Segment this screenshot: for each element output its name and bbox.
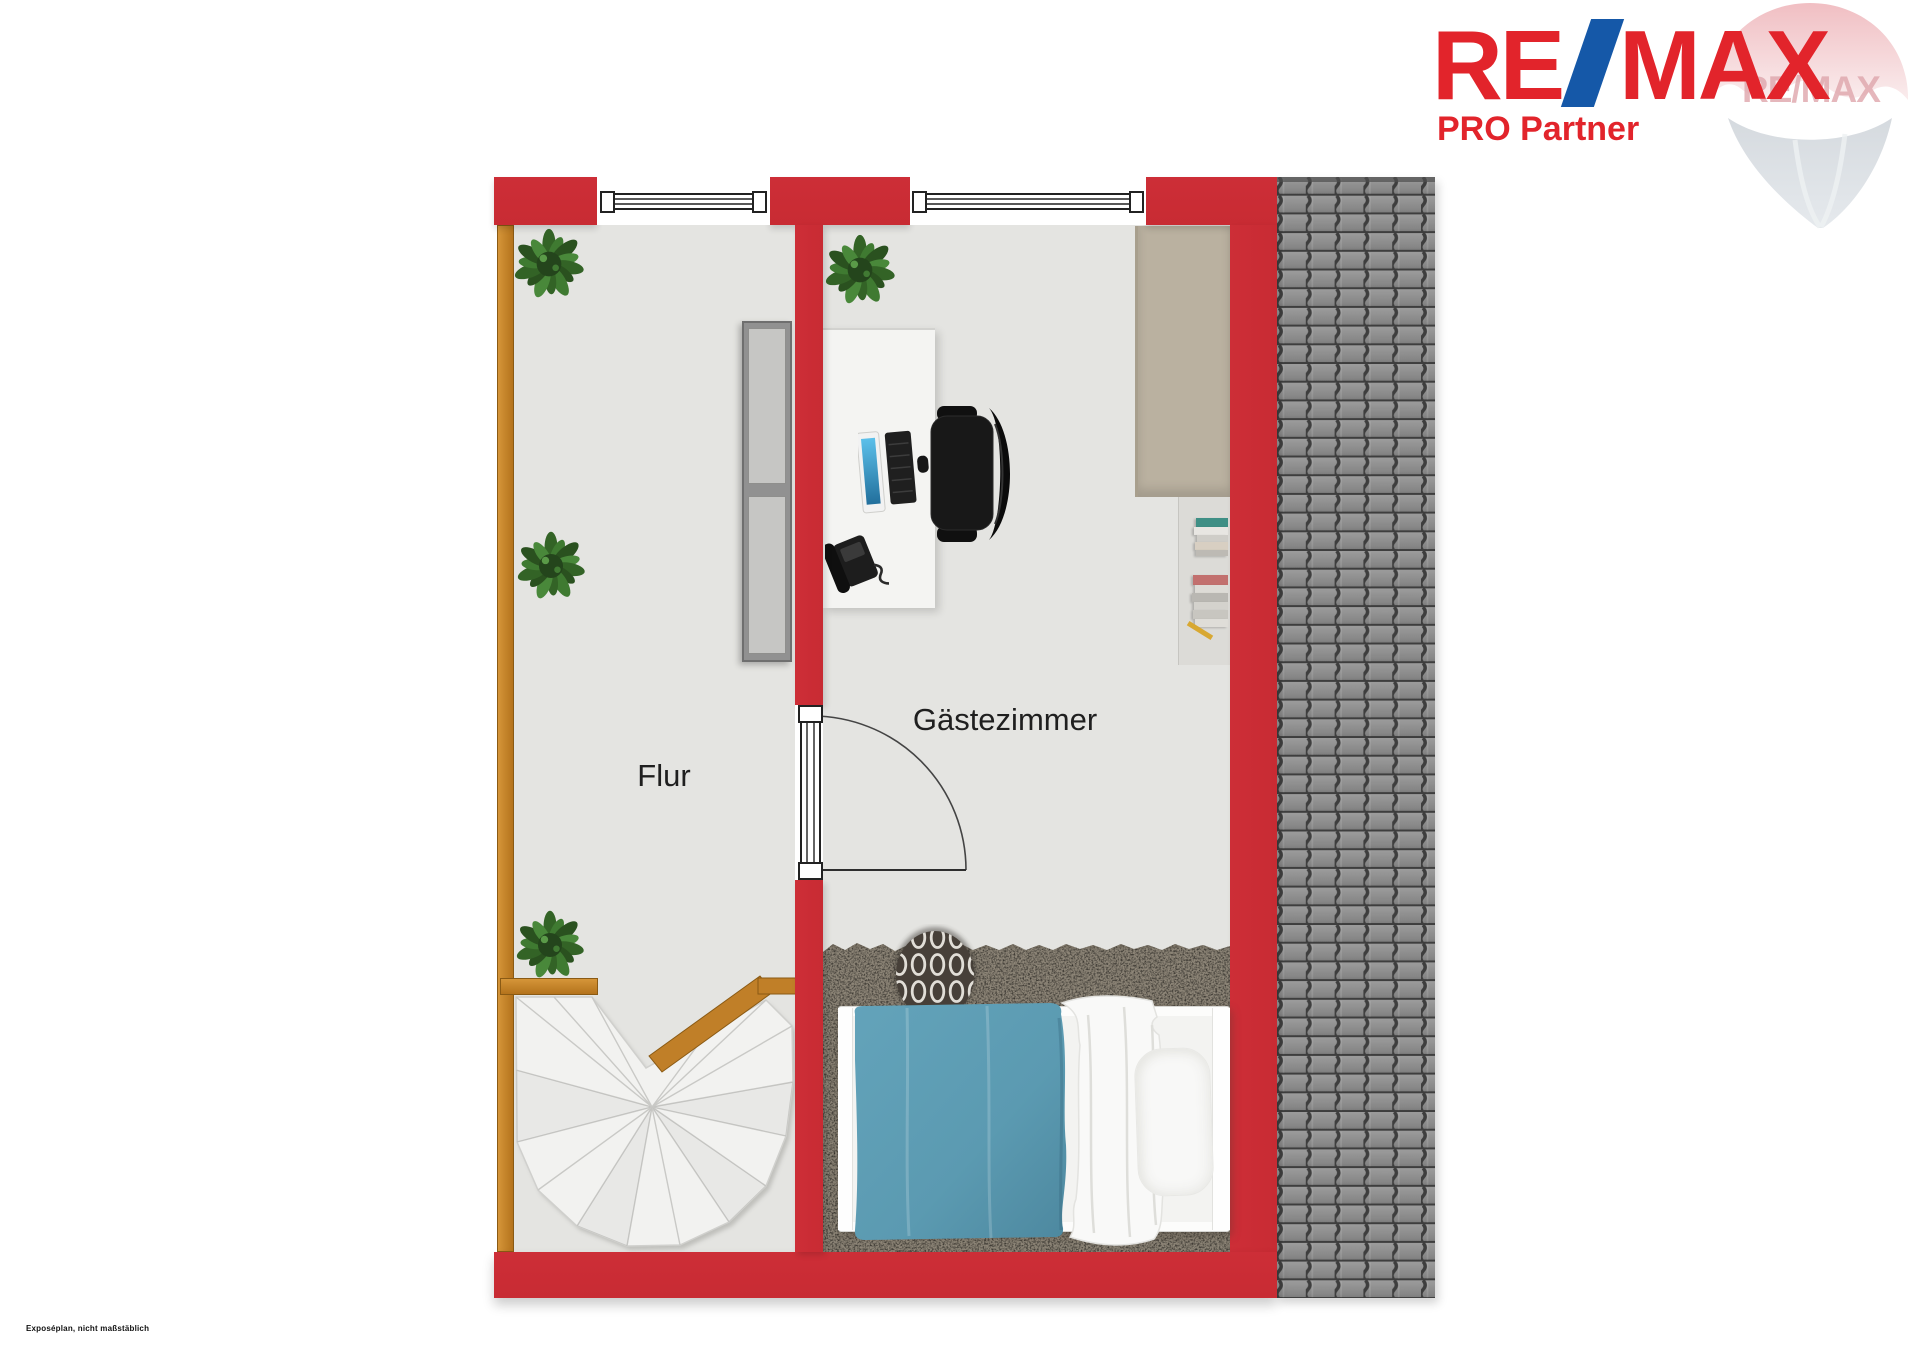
- closet-niche: [1135, 226, 1230, 497]
- logo-re: RE: [1432, 16, 1562, 114]
- roof-tiles: [1277, 177, 1435, 1298]
- desk-phone: [825, 530, 889, 604]
- window-icon: [597, 177, 770, 225]
- room-label-flur: Flur: [599, 758, 729, 794]
- wall-top-right: [1146, 177, 1277, 225]
- bed-footboard: [1212, 1008, 1230, 1230]
- wall-divider-upper: [795, 225, 823, 705]
- logo-max: MAX: [1619, 16, 1828, 114]
- wall-right: [1230, 225, 1277, 1252]
- railing-left: [497, 225, 514, 1252]
- wardrobe-door-top: [748, 328, 786, 484]
- remax-logo: RE MAX: [1432, 16, 1828, 114]
- wardrobe-door-bottom: [748, 496, 786, 654]
- disclaimer-text: Exposéplan, nicht maßstäblich: [26, 1324, 149, 1333]
- logo-slash-icon: [1561, 19, 1624, 107]
- plant-icon: [511, 226, 587, 302]
- plant-icon: [513, 908, 587, 982]
- plant-icon: [822, 232, 898, 308]
- wall-top-middle: [770, 177, 910, 225]
- railing-diagonal: [640, 965, 810, 1085]
- wardrobe: [742, 321, 792, 662]
- plant-icon: [514, 529, 588, 603]
- floorplan-page: RE/MAX RE MAX PRO Partner: [0, 0, 1920, 1358]
- wall-top-left: [494, 177, 597, 225]
- office-chair: [925, 398, 1025, 548]
- wall-divider-lower: [795, 880, 823, 1252]
- room-label-gaestezimmer: Gästezimmer: [900, 702, 1110, 738]
- logo-subtitle: PRO Partner: [1437, 110, 1639, 149]
- pillow: [1133, 1047, 1214, 1198]
- window-icon: [910, 177, 1146, 225]
